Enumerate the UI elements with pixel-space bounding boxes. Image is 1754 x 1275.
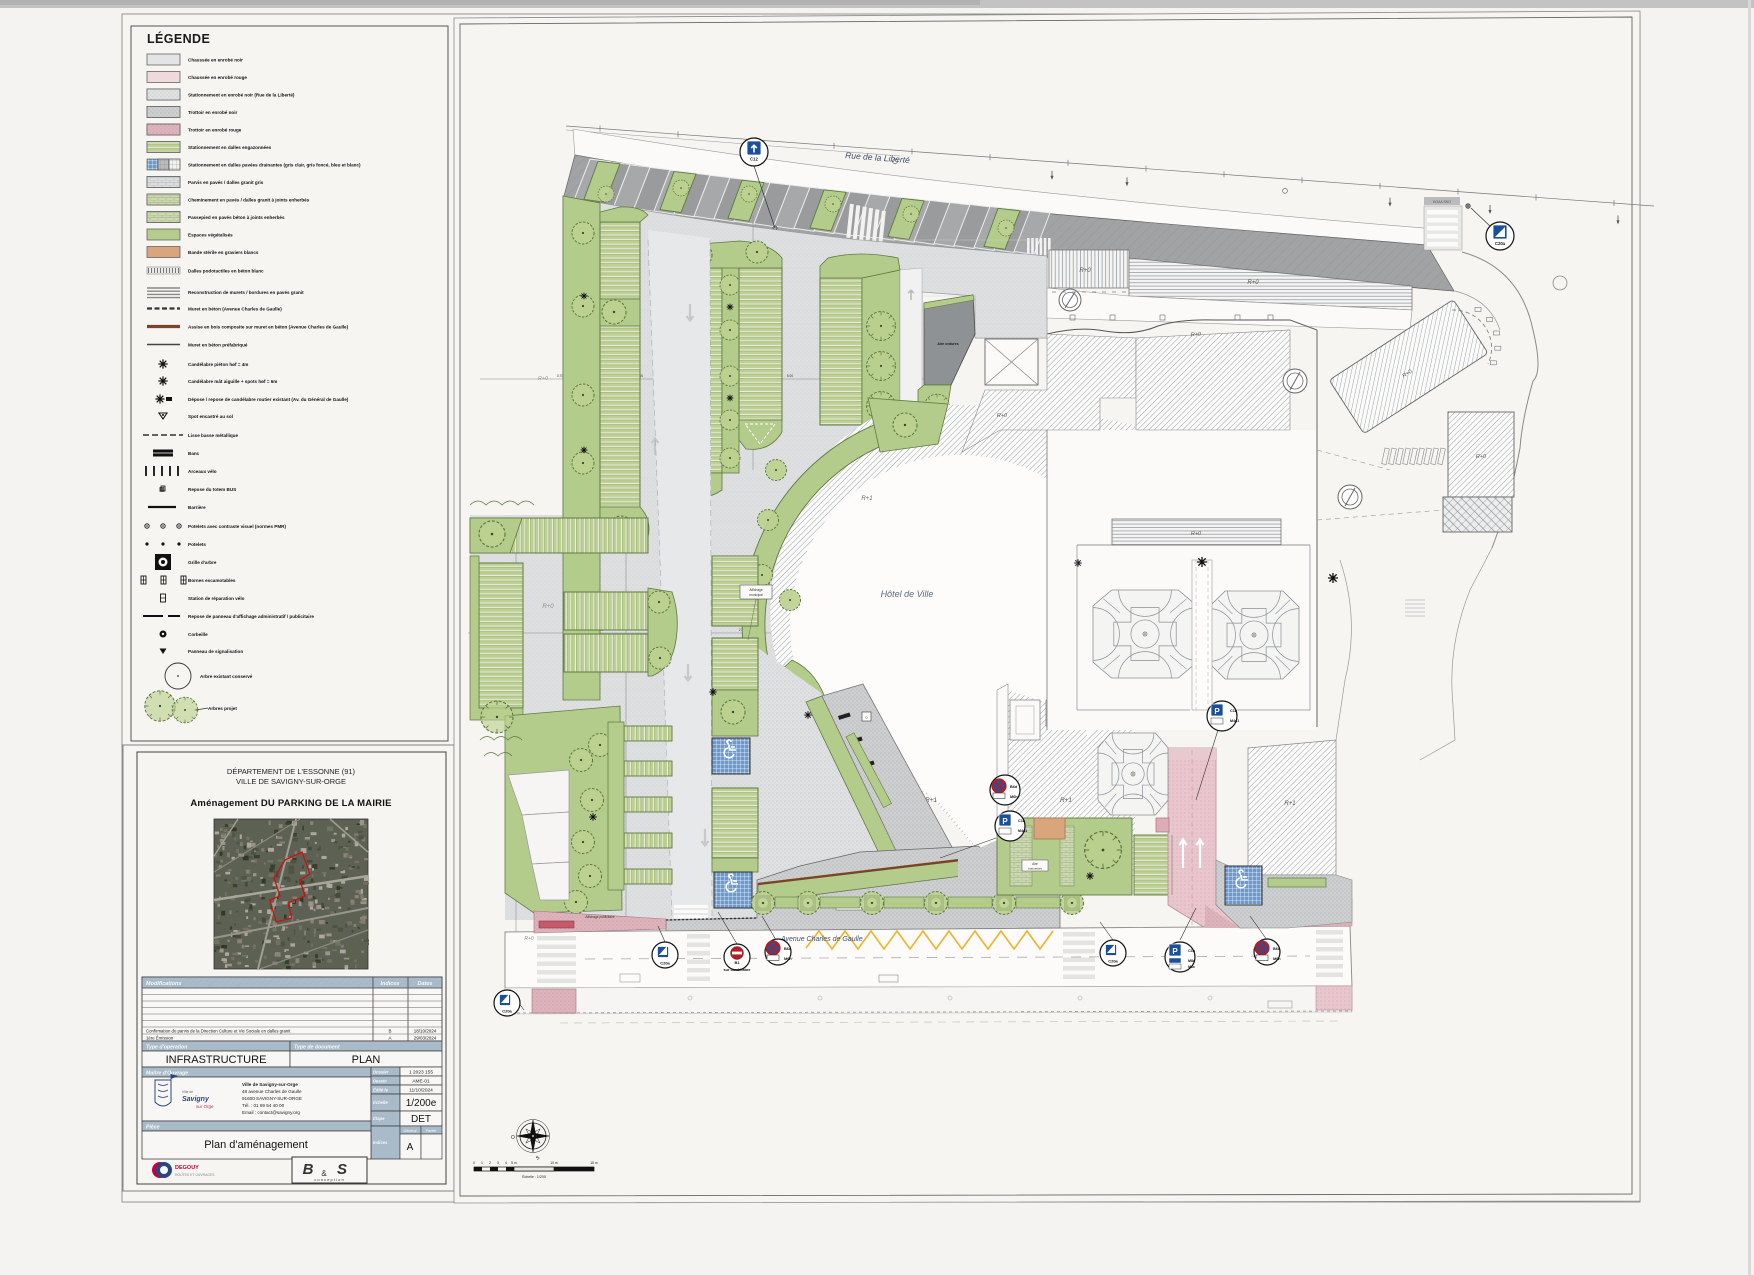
svg-text:Bande stérile en graviers blan: Bande stérile en graviers blancs (188, 250, 259, 255)
svg-text:Partiel: Partiel (426, 1129, 436, 1133)
svg-text:Confirmation du parvis de la D: Confirmation du parvis de la Direction C… (146, 1029, 291, 1034)
svg-text:C20a: C20a (1495, 241, 1506, 246)
svg-text:1/200e: 1/200e (406, 1098, 437, 1109)
svg-text:M6h: M6h (1273, 957, 1281, 961)
svg-text:Candélabre piéton høf = 4m: Candélabre piéton høf = 4m (188, 362, 248, 367)
svg-text:Chaussée en enrobé rouge: Chaussée en enrobé rouge (188, 75, 247, 80)
svg-text:M6c: M6c (1188, 965, 1195, 969)
svg-text:4: 4 (505, 1161, 507, 1165)
svg-text:Général: Général (404, 1129, 417, 1133)
svg-text:Parvis en pavés / dalles grani: Parvis en pavés / dalles granit gris (188, 180, 264, 185)
svg-text:Plan d'aménagement: Plan d'aménagement (204, 1139, 308, 1151)
svg-text:Dalles podotactiles en béton b: Dalles podotactiles en béton blanc (188, 269, 264, 274)
svg-text:DEGOUY: DEGOUY (175, 1165, 199, 1171)
svg-text:Savigny: Savigny (182, 1096, 210, 1103)
svg-text:Indices: Indices (381, 981, 400, 987)
svg-text:B6d: B6d (784, 947, 792, 951)
svg-text:R+0: R+0 (538, 376, 549, 382)
svg-text:Aire: Aire (1032, 862, 1038, 866)
svg-text:5 m: 5 m (511, 1161, 517, 1165)
svg-text:sur Orge: sur Orge (196, 1104, 214, 1109)
svg-text:11/10/2024: 11/10/2024 (409, 1088, 433, 1094)
svg-text:AME-01: AME-01 (412, 1079, 430, 1085)
svg-text:Ville de: Ville de (182, 1090, 193, 1094)
svg-text:R+0: R+0 (997, 413, 1008, 419)
svg-text:C1a: C1a (1018, 819, 1026, 823)
svg-text:R+0: R+0 (1476, 454, 1487, 460)
svg-text:R+0: R+0 (1191, 332, 1202, 339)
svg-text:1 2023 155: 1 2023 155 (409, 1070, 433, 1076)
svg-text:R+0: R+0 (542, 604, 554, 610)
svg-text:Potelets: Potelets (188, 542, 206, 547)
svg-text:C20a: C20a (502, 1009, 512, 1014)
svg-text:trottinettes: trottinettes (1028, 867, 1043, 871)
svg-text:BOAA SNO: BOAA SNO (1433, 200, 1451, 204)
svg-text:Banc: Banc (188, 451, 200, 456)
svg-text:Étape: Étape (373, 1116, 385, 1121)
svg-text:Hôtel de Ville: Hôtel de Ville (881, 589, 934, 599)
svg-text:M8a: M8a (1188, 959, 1196, 963)
svg-text:Arbres projet: Arbres projet (208, 706, 237, 711)
svg-text:Corbeille: Corbeille (188, 632, 208, 637)
svg-text:M4d1: M4d1 (1230, 719, 1239, 723)
svg-text:Type d'opération: Type d'opération (146, 1045, 187, 1051)
svg-text:sur candélabre: sur candélabre (723, 968, 750, 972)
svg-text:c o n c e p t i o n: c o n c e p t i o n (314, 1177, 343, 1182)
svg-text:C12: C12 (750, 157, 758, 162)
svg-text:1ère Émission: 1ère Émission (146, 1036, 174, 1041)
svg-text:Échelle : 1/200: Échelle : 1/200 (522, 1174, 546, 1179)
svg-text:Indices: Indices (373, 1140, 388, 1145)
svg-text:1: 1 (481, 1161, 483, 1165)
svg-text:Pièce: Pièce (146, 1125, 160, 1131)
svg-text:B6d: B6d (1273, 947, 1281, 951)
svg-text:Repose de panneau d'affichage: Repose de panneau d'affichage administra… (188, 614, 314, 619)
svg-text:A: A (388, 1036, 391, 1041)
svg-text:Assise en bois composite sur m: Assise en bois composite sur muret en bé… (188, 325, 349, 330)
svg-text:18/10/2024: 18/10/2024 (414, 1029, 437, 1034)
svg-text:Potelets avec contraste visuel: Potelets avec contraste visuel (normes P… (188, 524, 287, 529)
svg-text:Muret en béton préfabriqué: Muret en béton préfabriqué (188, 343, 248, 348)
svg-text:91600 SAVIGNY-SUR-ORGE: 91600 SAVIGNY-SUR-ORGE (242, 1096, 302, 1101)
svg-text:Dossier: Dossier (373, 1070, 389, 1075)
svg-text:R+0: R+0 (524, 936, 534, 942)
svg-text:Trottoir en enrobé noir: Trottoir en enrobé noir (188, 110, 237, 115)
svg-text:C20a: C20a (1108, 959, 1118, 964)
svg-text:Ville de Savigny-sur-Orge: Ville de Savigny-sur-Orge (242, 1082, 298, 1087)
svg-text:Grille d'arbre: Grille d'arbre (188, 560, 217, 565)
svg-text:Édité le: Édité le (373, 1088, 389, 1093)
svg-text:Affichage: Affichage (749, 588, 762, 592)
svg-text:Candélabre mât aiguille + spot: Candélabre mât aiguille + spots høf = 6m (188, 379, 277, 384)
svg-text:Stationnement en dalles engazo: Stationnement en dalles engazonnées (188, 145, 272, 150)
svg-text:Maître d'Ouvrage: Maître d'Ouvrage (146, 1071, 188, 1077)
svg-text:Chaussée en enrobé noir: Chaussée en enrobé noir (188, 58, 243, 63)
svg-text:Panneau de signalisation: Panneau de signalisation (188, 649, 243, 654)
svg-text:Tél. : 01 69 54 40 00: Tél. : 01 69 54 40 00 (242, 1103, 285, 1108)
svg-text:A: A (407, 1142, 414, 1153)
svg-text:Dessin: Dessin (373, 1079, 387, 1084)
svg-text:Email : contact@savigny.org: Email : contact@savigny.org (242, 1110, 300, 1115)
svg-text:Cheminement en pavés / dalles: Cheminement en pavés / dalles granit à j… (188, 198, 310, 203)
svg-text:48 avenue Charles de Gaulle: 48 avenue Charles de Gaulle (242, 1089, 302, 1094)
svg-text:B: B (303, 1161, 314, 1178)
svg-text:Affichage publicitaire: Affichage publicitaire (585, 915, 615, 919)
svg-text:DET: DET (411, 1114, 431, 1125)
svg-text:R+0: R+0 (1191, 531, 1202, 537)
svg-text:Avenue Charles de Gaulle: Avenue Charles de Gaulle (780, 936, 863, 943)
svg-text:R+1: R+1 (861, 496, 872, 502)
svg-text:Modifications: Modifications (146, 981, 181, 987)
svg-text:Station de réparation vélo: Station de réparation vélo (188, 596, 245, 601)
svg-text:Stationnement en enrobé noir (: Stationnement en enrobé noir (Rue de la … (188, 93, 295, 98)
svg-text:M4d1: M4d1 (1018, 829, 1027, 833)
svg-text:Trottoir en enrobé rouge: Trottoir en enrobé rouge (188, 128, 242, 133)
svg-text:Lisse basse métallique: Lisse basse métallique (188, 433, 238, 438)
svg-text:15 m: 15 m (590, 1161, 598, 1165)
svg-text:LÉGENDE: LÉGENDE (147, 31, 210, 46)
svg-text:▩̇: ▩̇ (159, 486, 165, 493)
svg-text:PLAN: PLAN (352, 1054, 381, 1066)
svg-text:Reconstruction de murets / bor: Reconstruction de murets / bordures en p… (188, 290, 304, 295)
svg-text:Stationnement en dalles pavées: Stationnement en dalles pavées drainante… (188, 163, 361, 168)
svg-text:Spot encastré au sol: Spot encastré au sol (188, 414, 233, 419)
svg-text:ROUTES ET OUVRAGES: ROUTES ET OUVRAGES (175, 1173, 215, 1177)
svg-text:P: P (1002, 817, 1008, 826)
svg-text:C1a: C1a (1188, 949, 1196, 953)
svg-text:INFRASTRUCTURE: INFRASTRUCTURE (166, 1054, 267, 1066)
svg-text:Espaces végétalisés: Espaces végétalisés (188, 233, 233, 238)
svg-text:R+1: R+1 (1060, 797, 1072, 804)
svg-text:B1: B1 (734, 960, 740, 965)
svg-text:C1a: C1a (1230, 709, 1238, 713)
svg-text:M6h: M6h (784, 957, 792, 961)
svg-text:R+0: R+0 (1247, 280, 1259, 286)
svg-text:municipal: municipal (749, 593, 763, 597)
svg-text:Dates: Dates (418, 981, 433, 987)
svg-text:Arceaux vélo: Arceaux vélo (188, 469, 217, 474)
svg-text:5.00: 5.00 (787, 374, 793, 378)
svg-text:P: P (1214, 707, 1220, 716)
svg-text:O: O (511, 1135, 515, 1141)
svg-text:Échelle: Échelle (373, 1100, 388, 1105)
svg-text:Passepied en pavés béton à joi: Passepied en pavés béton à joints enherb… (188, 215, 285, 220)
svg-text:Aire ordures: Aire ordures (937, 342, 958, 346)
svg-text:3: 3 (497, 1161, 499, 1165)
svg-text:Barrière: Barrière (188, 505, 206, 510)
svg-text:Aménagement DU PARKING DE LA M: Aménagement DU PARKING DE LA MAIRIE (190, 798, 391, 809)
svg-text:10 m: 10 m (550, 1161, 558, 1165)
svg-text:S: S (337, 1161, 347, 1178)
svg-text:Bornes escamotables: Bornes escamotables (188, 578, 236, 583)
svg-text:Dépose / repose de candélabre: Dépose / repose de candélabre routier ex… (188, 397, 349, 402)
svg-text:P: P (1172, 947, 1178, 956)
svg-text:Arbre existant conservé: Arbre existant conservé (200, 674, 253, 679)
svg-text:R+1: R+1 (1284, 801, 1295, 807)
svg-text:C20a: C20a (660, 961, 670, 966)
svg-text:Repose du totem BUS: Repose du totem BUS (188, 487, 236, 492)
svg-text:0: 0 (473, 1161, 475, 1165)
svg-text:B6d: B6d (1010, 785, 1018, 789)
svg-text:2: 2 (489, 1161, 491, 1165)
svg-text:DÉPARTEMENT DE L'ESSONNE (91): DÉPARTEMENT DE L'ESSONNE (91) (227, 767, 356, 776)
svg-text:Muret en béton (Avenue Charles: Muret en béton (Avenue Charles de Gaulle… (188, 307, 282, 312)
svg-text:Type de document: Type de document (294, 1045, 340, 1051)
svg-text:VILLE DE SAVIGNY-SUR-ORGE: VILLE DE SAVIGNY-SUR-ORGE (236, 777, 346, 786)
svg-text:B: B (388, 1029, 391, 1034)
svg-text:29/03/2024: 29/03/2024 (414, 1036, 437, 1041)
svg-text:R+0: R+0 (1079, 268, 1091, 274)
svg-text:0.70: 0.70 (557, 374, 563, 378)
svg-text:M6h: M6h (1010, 795, 1018, 799)
